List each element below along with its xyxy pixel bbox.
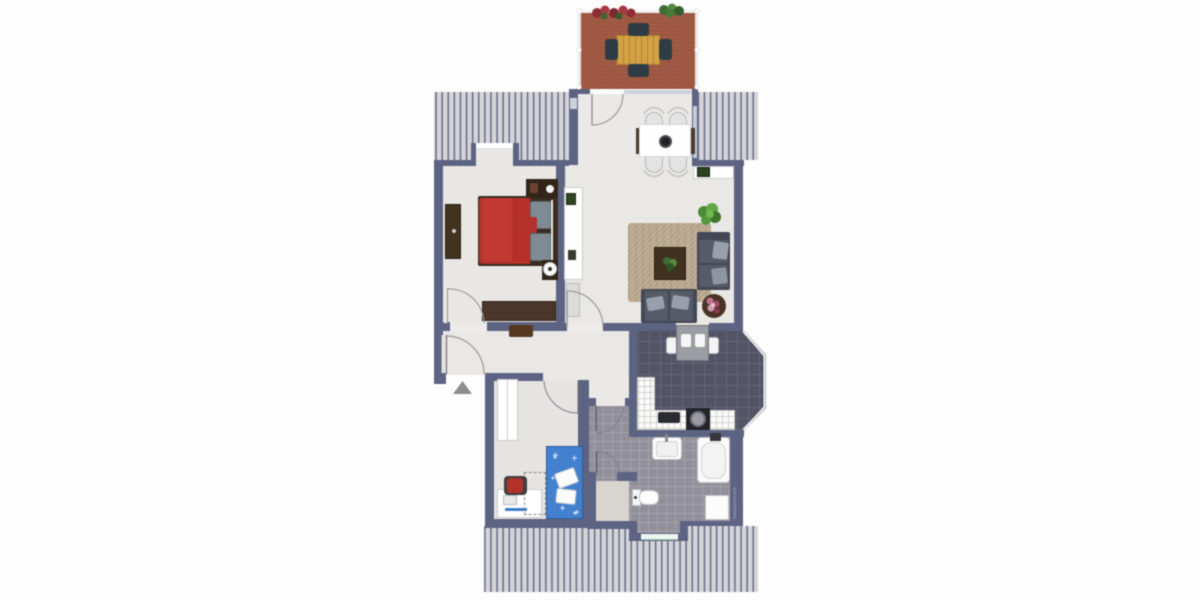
svg-text:floorplanner.com: floorplanner.com [732,487,737,519]
